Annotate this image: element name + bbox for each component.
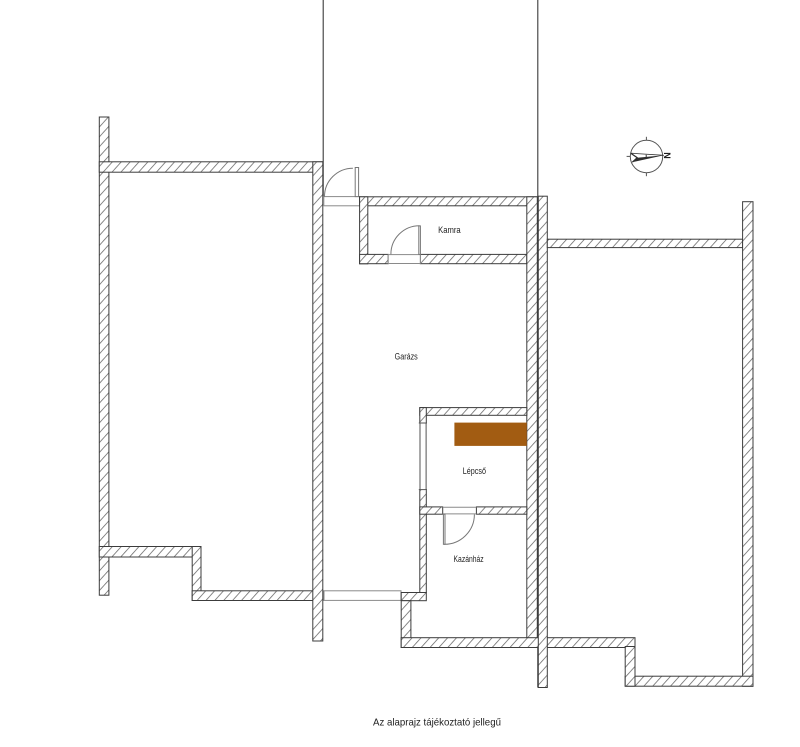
- svg-text:Kazánház: Kazánház: [454, 554, 484, 564]
- svg-text:Az alaprajz tájékoztató jelleg: Az alaprajz tájékoztató jellegű: [373, 717, 501, 729]
- svg-text:Lépcső: Lépcső: [463, 466, 486, 476]
- svg-text:N: N: [662, 152, 672, 159]
- svg-text:Kamra: Kamra: [438, 225, 461, 235]
- svg-text:Garázs: Garázs: [395, 352, 418, 362]
